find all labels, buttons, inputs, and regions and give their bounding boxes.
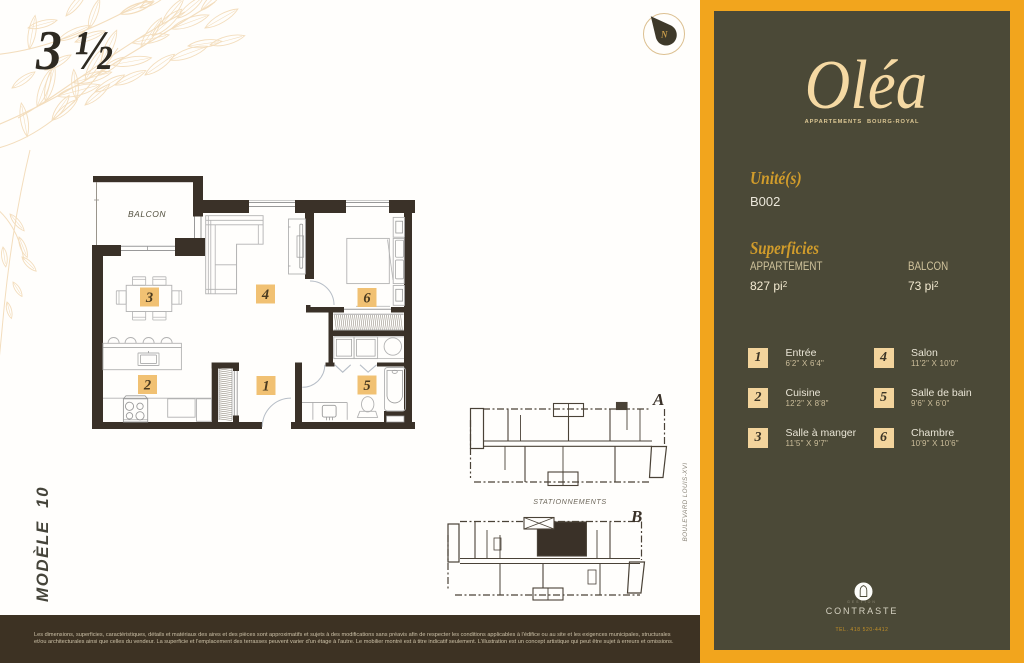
svg-text:B: B	[630, 507, 642, 526]
svg-text:2: 2	[143, 378, 151, 394]
svg-text:A: A	[652, 390, 664, 409]
svg-text:5: 5	[363, 378, 370, 394]
svg-text:3: 3	[145, 290, 153, 306]
svg-text:6: 6	[363, 291, 371, 307]
svg-text:4: 4	[261, 287, 269, 303]
svg-text:N: N	[660, 30, 668, 40]
svg-text:1: 1	[262, 379, 269, 395]
